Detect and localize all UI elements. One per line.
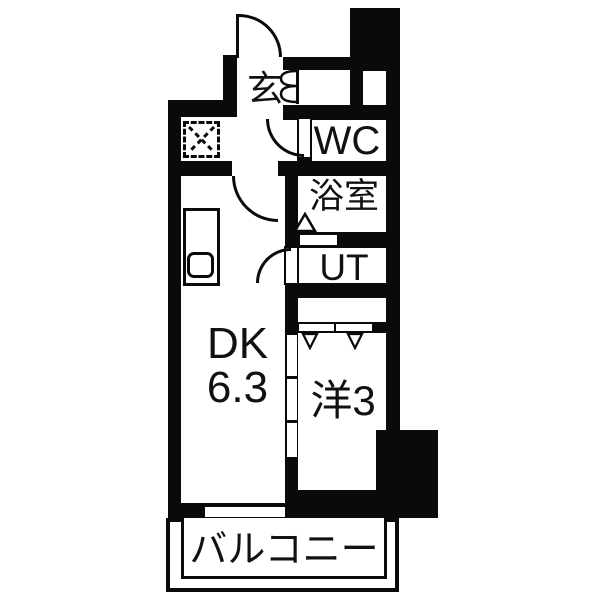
dk-size-label: 6.3	[190, 366, 285, 410]
wall-entry-pillar	[223, 55, 237, 117]
wc-label: WC	[309, 121, 385, 161]
kitchen-sink	[187, 252, 214, 278]
utility-label: UT	[306, 249, 382, 286]
pipe-space-notch	[363, 71, 386, 105]
balcony-window	[205, 507, 285, 517]
closet-door-divider	[334, 322, 336, 333]
floor-plan: 玄 WC 浴室 UT DK 6.3 洋3 バルコニー	[0, 0, 600, 600]
washing-machine-space	[183, 121, 220, 158]
dk-door-opening	[232, 161, 278, 176]
sliding-door	[287, 335, 297, 457]
sliding-door-divider	[287, 420, 297, 423]
wall-closet-end	[372, 322, 386, 333]
entrance-door-arc	[239, 14, 282, 57]
wc-door-arc	[266, 119, 304, 157]
bathroom-door-opening	[300, 235, 337, 245]
bathroom-label: 浴室	[303, 179, 385, 214]
ut-door-arc	[256, 248, 291, 283]
washing-machine-x-icon	[186, 124, 217, 155]
dk-door-arc	[232, 176, 278, 222]
western-room-label: 洋3	[300, 380, 386, 422]
closet-hanger-icon	[346, 333, 364, 350]
sliding-door-divider	[287, 376, 297, 379]
wall-western-bottom	[297, 490, 400, 518]
balcony-label: バルコニー	[184, 531, 384, 569]
dk-label: DK	[190, 322, 285, 366]
entrance-label: 玄	[246, 71, 284, 107]
wall-mid-band	[168, 161, 400, 176]
closet-hanger-icon	[301, 333, 319, 350]
